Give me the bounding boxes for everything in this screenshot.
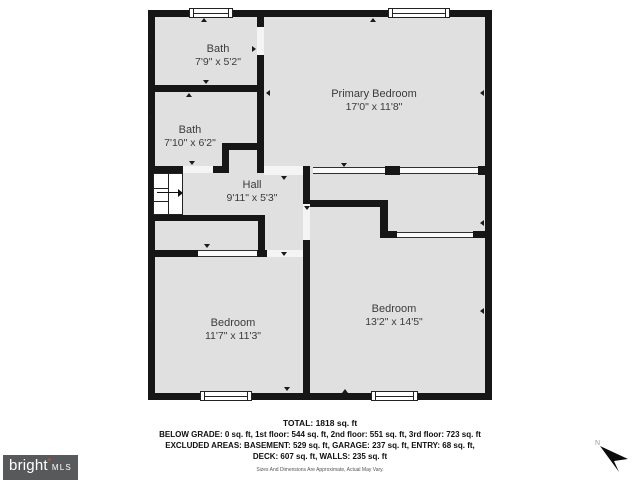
room-dimensions: 9'11" x 5'3" (227, 192, 278, 204)
wall-nook-top (222, 143, 264, 150)
brand-wordmark: bright (9, 458, 48, 473)
room-name: Bedroom (205, 317, 261, 329)
sliding-door-closet-left (198, 250, 257, 257)
window-top-right (388, 8, 450, 18)
wall-closet-left-bottom (155, 250, 198, 257)
wall-bath-lower-bottom-left (155, 166, 183, 173)
door-marker (281, 176, 287, 180)
door-marker (266, 90, 270, 96)
window-bottom-right (371, 391, 418, 401)
room-label-hall: Hall 9'11" x 5'3" (227, 179, 278, 204)
brand-asterisk-icon: * (48, 457, 51, 466)
excluded-areas-text: EXCLUDED AREAS: BASEMENT: 529 sq. ft, GA… (0, 440, 640, 451)
wall-closet-a-bottom (310, 200, 380, 207)
door-marker (252, 46, 256, 52)
room-label-primary-bedroom: Primary Bedroom 17'0" x 11'8" (331, 88, 417, 113)
door-marker (480, 220, 484, 226)
stair-tread-line (154, 188, 168, 189)
wall-bedrooms-divider-upper (303, 166, 310, 204)
wall-nook-left (222, 150, 229, 173)
deck-walls-text: DECK: 607 sq. ft, WALLS: 235 sq. ft (0, 451, 640, 462)
room-label-bath-lower: Bath 7'10" x 6'2" (164, 124, 216, 149)
disclaimer-text: Sizes And Dimensions Are Approximate, Ac… (0, 467, 640, 473)
wall-bedroom-left-door-post (257, 250, 267, 257)
door-marker (342, 389, 348, 393)
room-dimensions: 11'7" x 11'3" (205, 330, 261, 342)
window-bottom-left (200, 391, 252, 401)
door-marker (149, 318, 153, 324)
door-marker (480, 308, 484, 314)
door-marker (186, 93, 192, 97)
window-top-left (189, 8, 233, 18)
door-opening-bath-upper (257, 27, 264, 55)
brand-suffix: MLS (52, 463, 72, 472)
door-marker (281, 252, 287, 256)
north-arrow-icon: N (593, 436, 633, 474)
brightmls-logo: bright * MLS (3, 455, 78, 480)
door-marker (201, 18, 207, 22)
stair-direction-arrowhead (178, 189, 183, 197)
door-marker (284, 387, 290, 391)
door-marker (370, 18, 376, 22)
wall-closet-b-bottom-left (380, 231, 397, 238)
wall-bath-primary-divider (257, 55, 264, 150)
floor-areas-text: BELOW GRADE: 0 sq. ft, 1st floor: 544 sq… (0, 429, 640, 440)
sliding-door-primary-closet-b (400, 167, 478, 174)
wall-outer-right (485, 10, 492, 400)
room-name: Primary Bedroom (331, 88, 417, 100)
room-dimensions: 7'9" x 5'2" (195, 56, 241, 68)
stairs (153, 173, 183, 215)
stair-divider-line (168, 174, 169, 214)
room-dimensions: 7'10" x 6'2" (164, 137, 216, 149)
room-dimensions: 17'0" x 11'8" (331, 101, 417, 113)
wall-primary-closet-block (385, 166, 400, 175)
sliding-door-bedroom-right-closet (397, 232, 473, 238)
door-marker (304, 206, 310, 210)
room-name: Bedroom (365, 303, 423, 315)
room-name: Bath (195, 43, 241, 55)
room-name: Bath (164, 124, 216, 136)
stair-direction-arrow (157, 192, 179, 193)
door-marker (189, 161, 195, 165)
room-dimensions: 13'2" x 14'5" (365, 316, 423, 328)
wall-bath-lower-bottom-right (213, 166, 222, 173)
door-marker (149, 114, 153, 120)
floor-plan-page: { "plan": { "rooms": [ {"id": "bath-uppe… (0, 0, 640, 480)
door-marker (341, 163, 347, 167)
area-summary: TOTAL: 1818 sq. ft BELOW GRADE: 0 sq. ft… (0, 418, 640, 473)
wall-under-stairs (148, 215, 265, 221)
door-opening-bath-lower (183, 166, 213, 173)
room-label-bedroom-left: Bedroom 11'7" x 11'3" (205, 317, 261, 342)
wall-primary-closet-end (478, 166, 485, 175)
room-name: Hall (227, 179, 278, 191)
room-label-bath-upper: Bath 7'9" x 5'2" (195, 43, 241, 68)
sliding-door-primary-closet-a (313, 167, 385, 174)
door-marker (204, 244, 210, 248)
door-marker (149, 49, 153, 55)
wall-nook-right (257, 150, 264, 173)
north-label: N (595, 440, 600, 447)
total-area-text: TOTAL: 1818 sq. ft (0, 418, 640, 429)
stair-tread-line (154, 201, 168, 202)
wall-bath-divider-stub (257, 17, 264, 27)
wall-closet-b-bottom-right (473, 231, 485, 238)
door-marker (480, 90, 484, 96)
door-marker (203, 80, 209, 84)
door-opening-primary-bedroom (264, 166, 303, 175)
wall-bedrooms-divider-lower (303, 240, 310, 393)
room-label-bedroom-right: Bedroom 13'2" x 14'5" (365, 303, 423, 328)
wall-bath-upper-bottom (155, 85, 257, 92)
